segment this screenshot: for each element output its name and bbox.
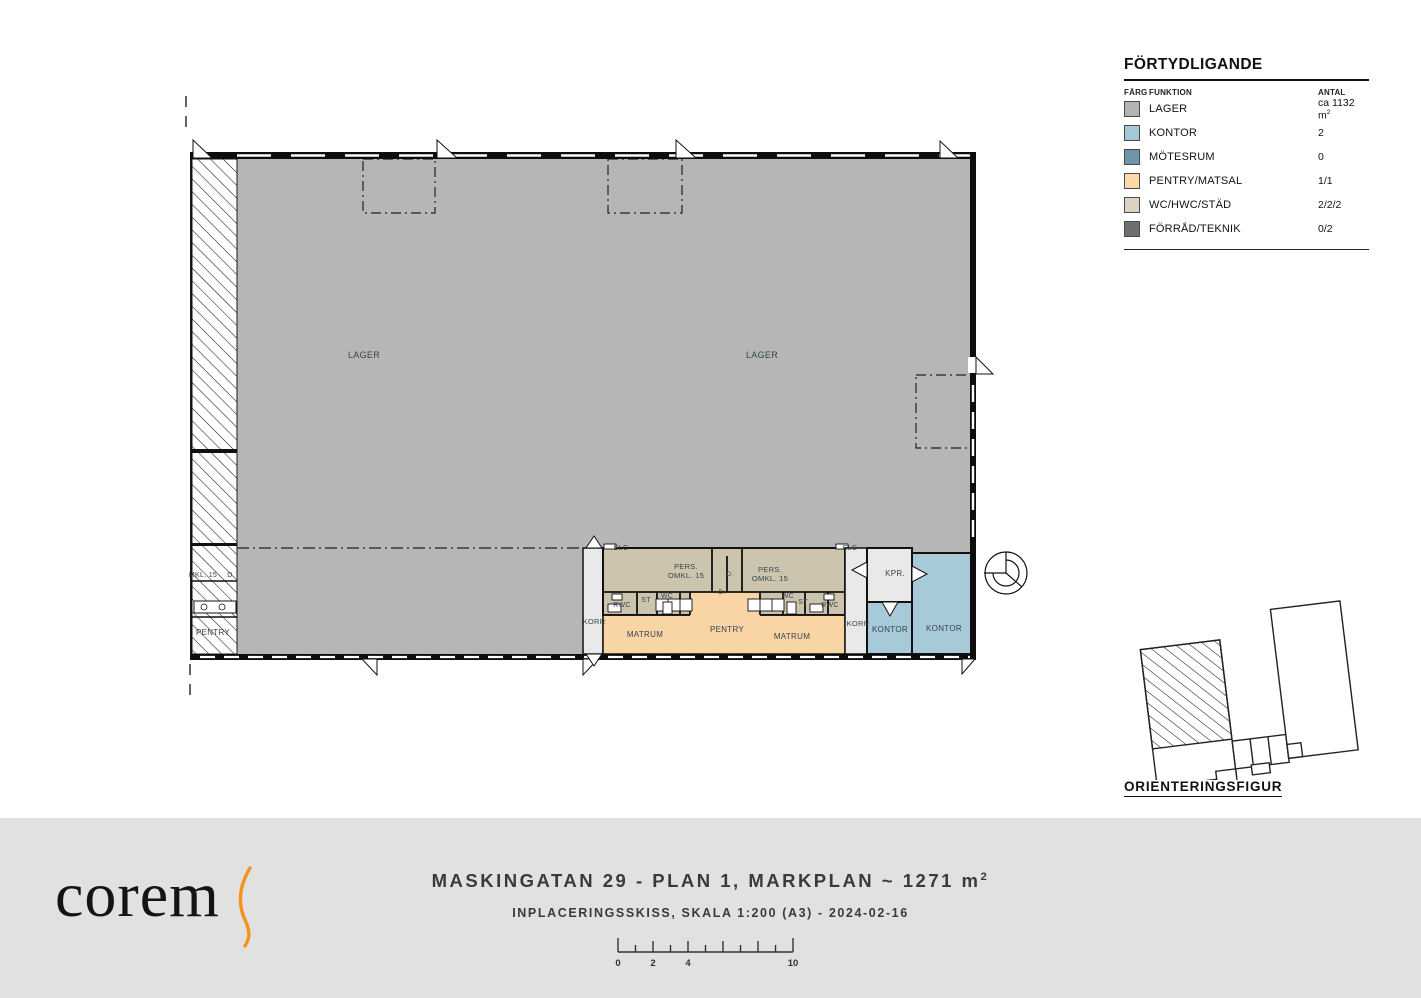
room-label: KONTOR <box>926 624 962 633</box>
legend-rows: LAGERca 1132 m2KONTOR2MÖTESRUM0PENTRY/MA… <box>1124 97 1369 250</box>
footer: corem MASKINGATAN 29 - PLAN 1, MARKPLAN … <box>0 818 1421 998</box>
scale-tick-label: 2 <box>650 958 655 969</box>
legend-row-antal: 2/2/2 <box>1318 199 1369 211</box>
orientation-figure <box>1118 600 1368 780</box>
room-label: OMKL. 15 <box>668 571 704 580</box>
legend-row: MÖTESRUM0 <box>1124 145 1369 169</box>
legend-row-antal: 0/2 <box>1318 223 1369 235</box>
room-label: D. <box>726 571 733 578</box>
legend-color-swatch <box>1124 173 1140 189</box>
spiral-stair <box>984 552 1027 594</box>
room-label: PENTRY <box>196 628 230 637</box>
room-label: KPR. <box>885 569 905 578</box>
legend-row: PENTRY/MATSAL1/1 <box>1124 169 1369 193</box>
legend-row-label: FÖRRÅD/TEKNIK <box>1149 223 1318 235</box>
legend-color-swatch <box>1124 149 1140 165</box>
scale-tick-label: 4 <box>685 958 691 969</box>
legend-col-farg: FÄRG <box>1124 88 1149 97</box>
drawing-title: MASKINGATAN 29 - PLAN 1, MARKPLAN ~ 1271… <box>0 870 1421 892</box>
neighbour-hatched-area <box>192 159 237 654</box>
legend-row: FÖRRÅD/TEKNIK0/2 <box>1124 217 1369 241</box>
room-kontor-right <box>912 553 972 654</box>
room-label: D. <box>227 572 235 579</box>
scale-bar: 02410 <box>606 936 816 970</box>
legend-header: FÄRG FUNKTION ANTAL <box>1124 88 1369 97</box>
room-label: PERS. <box>674 562 698 571</box>
room-label: PENTRY <box>710 625 744 634</box>
room-label: WC <box>661 593 673 600</box>
room-label: D. <box>718 589 725 596</box>
legend-col-antal: ANTAL <box>1318 88 1369 97</box>
legend-title: FÖRTYDLIGANDE <box>1124 56 1369 81</box>
room-korr-left <box>583 548 603 654</box>
room-label: PERS. <box>758 565 782 574</box>
room-label: RWC <box>821 602 839 609</box>
legend-row-antal: ca 1132 m2 <box>1318 97 1369 122</box>
legend-color-swatch <box>1124 101 1140 117</box>
room-label: LAGER <box>746 350 778 360</box>
legend-col-funktion: FUNKTION <box>1149 88 1318 97</box>
room-label: MATRUM <box>627 630 663 639</box>
room-label: MKL. 15 <box>189 572 217 579</box>
legend-row-label: PENTRY/MATSAL <box>1149 175 1318 187</box>
room-label: ELC <box>614 545 629 552</box>
orientation-left-building <box>1140 640 1237 780</box>
legend: FÖRTYDLIGANDE FÄRG FUNKTION ANTAL LAGERc… <box>1124 56 1369 250</box>
legend-row: KONTOR2 <box>1124 121 1369 145</box>
legend-color-swatch <box>1124 125 1140 141</box>
scale-tick-label: 10 <box>787 958 798 969</box>
legend-row: WC/HWC/STÄD2/2/2 <box>1124 193 1369 217</box>
floorplan-drawing: LAGERLAGERELCELCPERS.OMKL. 15PERS.OMKL. … <box>0 0 1100 818</box>
room-label: RWC <box>613 602 631 609</box>
room-label: MATRUM <box>774 632 810 641</box>
orientation-label: ORIENTERINGSFIGUR <box>1124 779 1282 797</box>
room-label: KONTOR <box>872 625 908 634</box>
room-label: OMKL. 15 <box>752 574 788 583</box>
room-label: ELC <box>843 545 858 552</box>
drawing-subtitle: INPLACERINGSSKISS, SKALA 1:200 (A3) - 20… <box>0 906 1421 920</box>
legend-row-label: WC/HWC/STÄD <box>1149 199 1318 211</box>
room-label: KORR <box>583 617 606 626</box>
boundary-marker-dashes <box>186 96 190 698</box>
room-label: ST <box>798 599 808 606</box>
legend-color-swatch <box>1124 197 1140 213</box>
legend-row-label: MÖTESRUM <box>1149 151 1318 163</box>
legend-row-label: LAGER <box>1149 103 1318 115</box>
legend-row-antal: 1/1 <box>1318 175 1369 187</box>
legend-row: LAGERca 1132 m2 <box>1124 97 1369 121</box>
legend-row-antal: 2 <box>1318 127 1369 139</box>
legend-row-label: KONTOR <box>1149 127 1318 139</box>
orientation-connector <box>1232 735 1290 777</box>
room-label: ST <box>641 597 651 604</box>
legend-color-swatch <box>1124 221 1140 237</box>
room-label: LAGER <box>348 350 380 360</box>
scale-tick-label: 0 <box>615 958 620 969</box>
legend-row-antal: 0 <box>1318 151 1369 163</box>
room-label: WC <box>782 593 794 600</box>
page: LAGERLAGERELCELCPERS.OMKL. 15PERS.OMKL. … <box>0 0 1421 998</box>
room-label: KORR <box>847 619 870 628</box>
